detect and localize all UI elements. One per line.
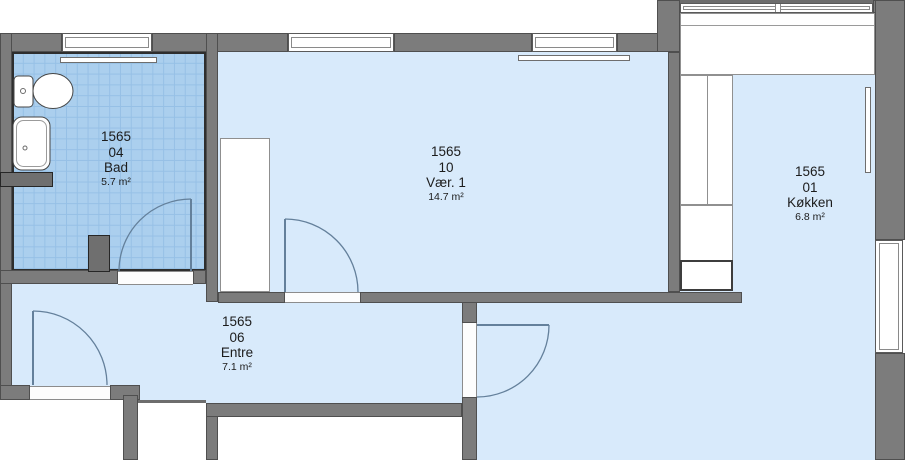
wall-stub-bath-door <box>88 235 110 272</box>
room-area: 5.7 m² <box>61 176 171 189</box>
room-id: 1565 <box>61 129 171 145</box>
wall-kitchen-corner <box>657 0 680 52</box>
kitchen-counter-sill-line <box>681 14 874 26</box>
room-id: 1565 <box>755 164 865 180</box>
window-pane <box>535 37 614 48</box>
wall-room1-bottom-a <box>218 292 285 303</box>
entre-floor-left <box>12 283 206 400</box>
wall-right-bottom <box>875 353 905 460</box>
wall-entre-bottom-a <box>0 385 30 400</box>
entry-door-threshold <box>30 386 110 400</box>
wall-dining-door-stub-top <box>462 302 477 323</box>
wall-top-c <box>394 33 532 52</box>
room-name: Entre <box>182 345 292 361</box>
bathroom-radiator <box>60 57 157 63</box>
room1-door-threshold <box>285 292 360 303</box>
room-id: 1565 <box>182 314 292 330</box>
room1-window-2 <box>532 33 617 52</box>
room-area: 14.7 m² <box>391 191 501 204</box>
room-no: 04 <box>61 145 171 161</box>
room-no: 10 <box>391 160 501 176</box>
room-name: Bad <box>61 160 171 176</box>
floor-plan: 1565 04 Bad 5.7 m² 1565 10 Vær. 1 14.7 m… <box>0 0 905 460</box>
stove-icon <box>680 260 733 291</box>
room-label-entre: 1565 06 Entre 7.1 m² <box>182 314 292 374</box>
kitchen-cabinet-3 <box>680 205 733 261</box>
room1-radiator <box>518 55 630 61</box>
kitchen-cabinet-1 <box>680 75 708 205</box>
room-name: Vær. 1 <box>391 175 501 191</box>
niche-edge-line <box>138 400 206 403</box>
kitchen-radiator <box>865 87 871 173</box>
room-no: 06 <box>182 330 292 346</box>
wall-dining-door-stub-bottom <box>462 397 477 460</box>
wall-step-down <box>123 395 138 460</box>
kitchen-counter-top <box>680 13 875 75</box>
wall-stub-sink <box>0 172 53 187</box>
wall-bathroom-right <box>206 33 218 302</box>
room-label-vaer1: 1565 10 Vær. 1 14.7 m² <box>391 144 501 204</box>
kitchen-cabinet-2 <box>707 75 733 205</box>
room-label-bad: 1565 04 Bad 5.7 m² <box>61 129 171 189</box>
window-pane <box>291 37 391 48</box>
room-name: Køkken <box>755 195 865 211</box>
room1-window-1 <box>288 33 394 52</box>
wall-bathroom-bottom-b <box>193 270 206 284</box>
wall-entre-bottom-right <box>206 403 462 417</box>
bathroom-window <box>62 33 152 52</box>
room-area: 7.1 m² <box>182 361 292 374</box>
wall-room1-bottom-b <box>360 292 742 303</box>
dining-floor <box>477 303 680 460</box>
kitchen-window-top <box>680 3 873 13</box>
room-no: 01 <box>755 180 865 196</box>
wall-left-outer <box>0 33 12 395</box>
wall-right-top <box>875 0 905 240</box>
room-id: 1565 <box>391 144 501 160</box>
kitchen-window-right <box>875 240 903 353</box>
wall-kitchen-left <box>668 52 680 292</box>
window-pane <box>879 243 899 350</box>
dining-door-threshold <box>462 323 477 397</box>
window-mullion <box>775 4 781 12</box>
room-label-koekken: 1565 01 Køkken 6.8 m² <box>755 164 865 224</box>
wall-bathroom-bottom-a <box>0 270 118 284</box>
window-pane <box>65 37 149 48</box>
room-area: 6.8 m² <box>755 211 865 224</box>
room1-closet <box>220 138 270 292</box>
wall-top-b <box>152 33 288 52</box>
bathroom-door-threshold <box>118 271 193 285</box>
